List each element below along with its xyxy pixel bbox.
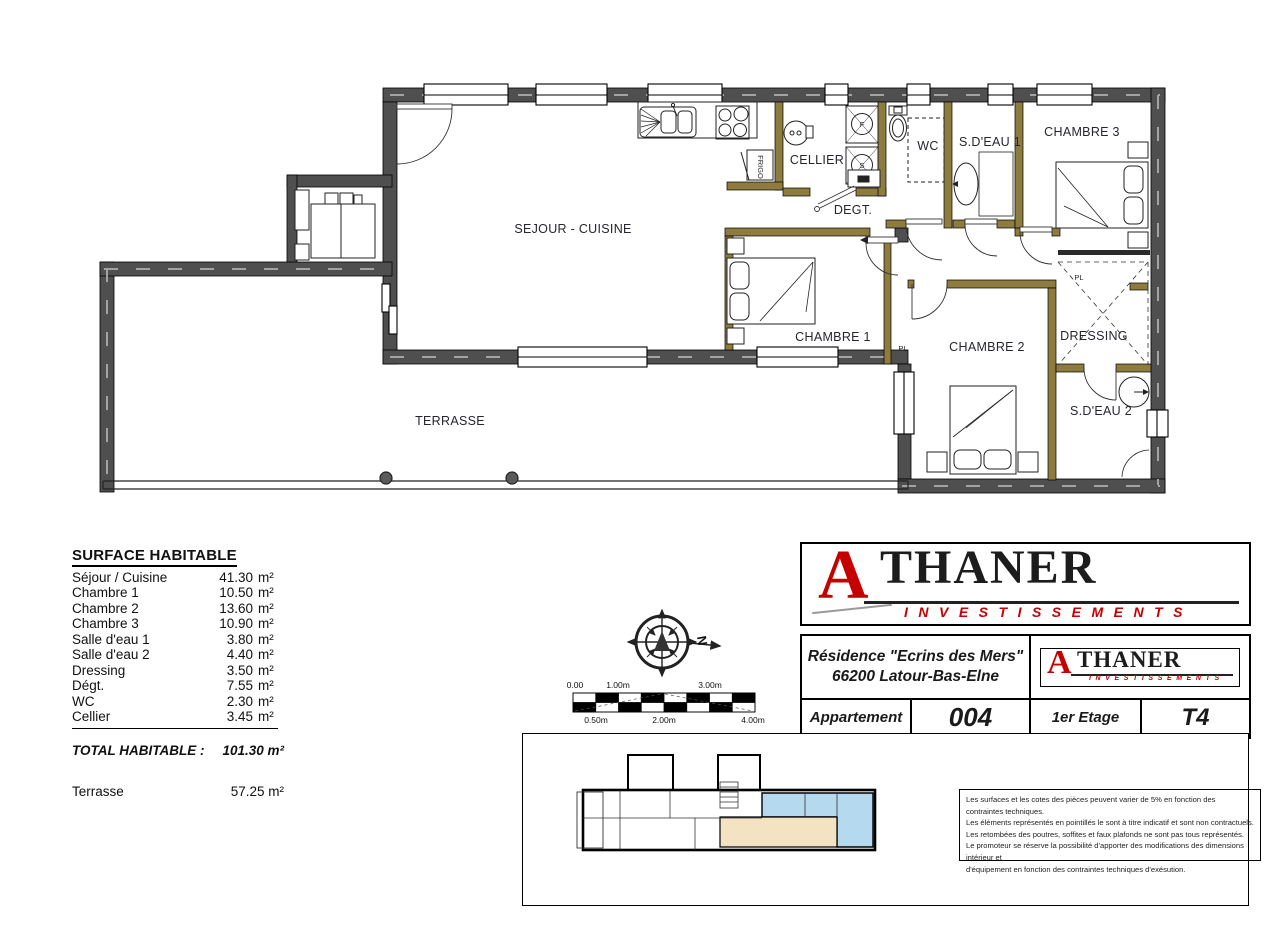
surface-row: Chambre 110.50m² bbox=[72, 585, 284, 601]
chambre1-furniture bbox=[727, 238, 815, 344]
room-label-terrasse: TERRASSE bbox=[415, 414, 485, 428]
compass-rose: N bbox=[628, 610, 720, 676]
surface-row: Salle d'eau 13.80m² bbox=[72, 632, 284, 648]
key-plan bbox=[575, 748, 880, 860]
disclaimer-line: d'équipement en fonction des contraintes… bbox=[966, 864, 1254, 876]
cellier-fixtures bbox=[784, 106, 880, 187]
terrace-post bbox=[380, 472, 392, 484]
sdeau2-door bbox=[1084, 368, 1116, 400]
scale-label: 2.00m bbox=[652, 715, 676, 725]
room-label-sdeau2: S.D'EAU 2 bbox=[1070, 404, 1132, 418]
room-label-sdeau1: S.D'EAU 1 bbox=[959, 135, 1021, 149]
surface-row: WC2.30m² bbox=[72, 694, 284, 710]
residence-name: Résidence "Ecrins des Mers" bbox=[808, 647, 1023, 667]
chambre3-door bbox=[1020, 232, 1052, 264]
scale-label: 1.00m bbox=[606, 680, 630, 690]
closet-label-dressing: PL bbox=[1074, 273, 1083, 282]
floor-label: 1er Etage bbox=[1031, 700, 1142, 735]
room-label-chambre2: CHAMBRE 2 bbox=[949, 340, 1025, 354]
disclaimer: Les surfaces et les cotes des pièces peu… bbox=[959, 789, 1261, 861]
sdeau1-fixtures bbox=[953, 152, 1013, 216]
chambre3-pl-wall bbox=[1058, 250, 1150, 255]
dryer-letter: S bbox=[859, 161, 864, 170]
wc-door bbox=[906, 224, 942, 260]
brand-subtitle: INVESTISSEMENTS bbox=[904, 604, 1193, 620]
surface-row: Chambre 213.60m² bbox=[72, 601, 284, 617]
room-label-dressing: DRESSING bbox=[1060, 329, 1128, 343]
surface-row: Séjour / Cuisine41.30m² bbox=[72, 570, 284, 586]
compass-and-scale: N 0.00 1.00m 3.00m 0.50m 2.00m bbox=[555, 600, 775, 735]
terrace-row: Terrasse 57.25 m² bbox=[72, 784, 284, 800]
floor-plan: FRIGO F S bbox=[0, 0, 1267, 530]
key-plan-terrace bbox=[720, 817, 837, 847]
room-label-wc: WC bbox=[917, 139, 938, 153]
sdeau1-door bbox=[965, 224, 997, 256]
scale-label: 0.50m bbox=[584, 715, 608, 725]
chambre2-door bbox=[912, 284, 947, 319]
fridge: FRIGO bbox=[741, 150, 773, 180]
room-label-sejour: SEJOUR - CUISINE bbox=[514, 222, 631, 236]
residence-cell: Résidence "Ecrins des Mers" 66200 Latour… bbox=[802, 636, 1031, 698]
logo-cell: A THANER INVESTISSEMENTS bbox=[1031, 636, 1249, 698]
apartment-number: 004 bbox=[912, 700, 1031, 735]
surface-table: SURFACE HABITABLE Séjour / Cuisine41.30m… bbox=[72, 548, 284, 800]
terrace-value: 57.25 m² bbox=[231, 784, 284, 800]
bottom-box: Les surfaces et les cotes des pièces peu… bbox=[522, 733, 1249, 906]
room-label-degt: DEGT. bbox=[834, 203, 872, 217]
basin1 bbox=[954, 163, 978, 205]
disclaimer-line: Le promoteur se réserve la possibilité d… bbox=[966, 840, 1254, 863]
dressing-marks bbox=[1058, 262, 1148, 365]
scale-label: 4.00m bbox=[741, 715, 765, 725]
kitchen bbox=[638, 102, 757, 139]
scale-label: 3.00m bbox=[698, 680, 722, 690]
shower1 bbox=[979, 152, 1013, 216]
apartment-label: Appartement bbox=[802, 700, 912, 735]
entry-door-leaf bbox=[397, 104, 452, 109]
brand-logo-large: A THANER INVESTISSEMENTS bbox=[800, 542, 1251, 626]
disclaimer-line: Les éléments représentés en pointillés l… bbox=[966, 817, 1254, 829]
total-value: 101.30 m² bbox=[222, 743, 284, 759]
room-label-cellier: CELLIER bbox=[790, 153, 844, 167]
chambre3-furniture bbox=[1056, 142, 1148, 248]
surface-table-title: SURFACE HABITABLE bbox=[72, 548, 237, 567]
title-block: Résidence "Ecrins des Mers" 66200 Latour… bbox=[800, 634, 1251, 739]
surface-row: Chambre 310.90m² bbox=[72, 616, 284, 632]
surface-row: Cellier3.45m² bbox=[72, 709, 284, 725]
brand-name: THANER bbox=[880, 540, 1097, 595]
fridge-label: FRIGO bbox=[756, 155, 765, 179]
terrace-post bbox=[506, 472, 518, 484]
washer-letter: F bbox=[860, 120, 865, 129]
scale-bar: 0.00 1.00m 3.00m 0.50m 2.00m 4.00m bbox=[567, 680, 765, 725]
terrace-railing bbox=[103, 472, 908, 489]
table-divider bbox=[72, 728, 278, 729]
surface-row: Dégt.7.55m² bbox=[72, 678, 284, 694]
surface-row: Salle d'eau 24.40m² bbox=[72, 647, 284, 663]
room-label-chambre1: CHAMBRE 1 bbox=[795, 330, 871, 344]
disclaimer-line: Les retombées des poutres, soffites et f… bbox=[966, 829, 1254, 841]
disclaimer-line: Les surfaces et les cotes des pièces peu… bbox=[966, 794, 1254, 817]
sdeau2-fixtures bbox=[1119, 377, 1149, 477]
residence-city: 66200 Latour-Bas-Elne bbox=[832, 667, 999, 687]
surface-row: Dressing3.50m² bbox=[72, 663, 284, 679]
chambre1-door bbox=[866, 243, 898, 275]
unit-type: T4 bbox=[1142, 700, 1249, 735]
room-label-chambre3: CHAMBRE 3 bbox=[1044, 125, 1120, 139]
chambre1-door-leaf bbox=[866, 237, 898, 243]
water-heater bbox=[784, 121, 808, 145]
brand-logo-small: A THANER INVESTISSEMENTS bbox=[1040, 648, 1240, 687]
chambre2-furniture bbox=[927, 386, 1038, 474]
airlock-equipment bbox=[295, 190, 375, 260]
brand-initial: A bbox=[818, 536, 869, 616]
scale-label: 0.00 bbox=[567, 680, 584, 690]
total-row: TOTAL HABITABLE : 101.30 m² bbox=[72, 743, 284, 759]
closet-label-chambre1: PL bbox=[898, 344, 907, 353]
